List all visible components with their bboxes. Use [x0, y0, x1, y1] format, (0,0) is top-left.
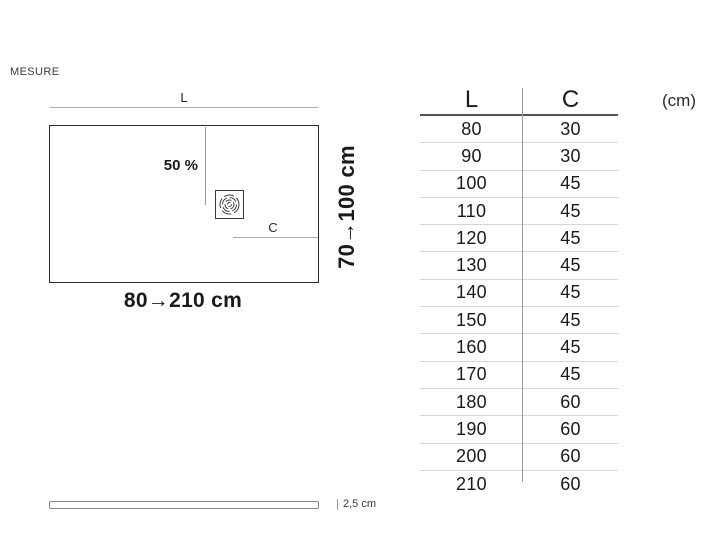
cell-l: 110	[420, 198, 523, 224]
tray-side-profile	[49, 501, 319, 509]
cell-l: 150	[420, 307, 523, 333]
size-table: L C 803090301004511045120451304514045150…	[420, 86, 618, 497]
cell-c: 45	[523, 334, 618, 360]
slope-center-line	[205, 127, 206, 205]
cell-c: 45	[523, 280, 618, 306]
table-row: 21060	[420, 471, 618, 497]
length-dim-label: L	[50, 90, 318, 105]
drain-dim-line	[233, 237, 318, 238]
spec-sheet: MESURE L 50 % C 80→210 cm 70→100 cm 2,5 …	[0, 0, 720, 540]
size-table-body: 8030903010045110451204513045140451504516…	[420, 116, 618, 497]
depth-range-label: 70→100 cm	[334, 122, 360, 292]
table-row: 14045	[420, 280, 618, 307]
cell-c: 45	[523, 362, 618, 388]
table-row: 9030	[420, 143, 618, 170]
cell-l: 90	[420, 143, 523, 169]
cell-l: 180	[420, 389, 523, 415]
length-range-label: 80→210 cm	[83, 289, 283, 313]
slope-label: 50 %	[128, 157, 198, 174]
header-col-c: C	[523, 86, 618, 114]
size-table-header: L C	[420, 86, 618, 116]
table-row: 18060	[420, 389, 618, 416]
table-row: 10045	[420, 171, 618, 198]
table-row: 8030	[420, 116, 618, 143]
cell-c: 60	[523, 389, 618, 415]
cell-l: 140	[420, 280, 523, 306]
cell-c: 30	[523, 143, 618, 169]
cell-l: 190	[420, 416, 523, 442]
cell-c: 45	[523, 225, 618, 251]
cell-l: 200	[420, 444, 523, 470]
cell-l: 80	[420, 116, 523, 142]
thickness-label: 2,5 cm	[343, 498, 376, 510]
cell-c: 45	[523, 252, 618, 278]
cell-c: 45	[523, 198, 618, 224]
drain-swirl-icon	[215, 190, 244, 219]
header-col-l: L	[420, 86, 523, 114]
thickness-tick	[337, 499, 338, 510]
drain-dim-label: C	[262, 220, 284, 235]
table-row: 19060	[420, 416, 618, 443]
cell-l: 120	[420, 225, 523, 251]
table-row: 13045	[420, 252, 618, 279]
cell-l: 210	[420, 471, 523, 497]
cell-c: 60	[523, 444, 618, 470]
page-title: MESURE	[10, 66, 59, 78]
table-row: 15045	[420, 307, 618, 334]
cell-l: 160	[420, 334, 523, 360]
table-row: 20060	[420, 444, 618, 471]
column-divider	[522, 88, 523, 482]
table-row: 11045	[420, 198, 618, 225]
table-row: 12045	[420, 225, 618, 252]
cell-c: 60	[523, 471, 618, 497]
table-row: 17045	[420, 362, 618, 389]
cell-c: 60	[523, 416, 618, 442]
table-row: 16045	[420, 334, 618, 361]
cell-l: 130	[420, 252, 523, 278]
cell-c: 45	[523, 171, 618, 197]
length-dim-line	[50, 107, 318, 108]
unit-label: (cm)	[662, 91, 696, 111]
tray-top-view	[49, 125, 319, 283]
cell-l: 170	[420, 362, 523, 388]
cell-c: 30	[523, 116, 618, 142]
cell-l: 100	[420, 171, 523, 197]
cell-c: 45	[523, 307, 618, 333]
